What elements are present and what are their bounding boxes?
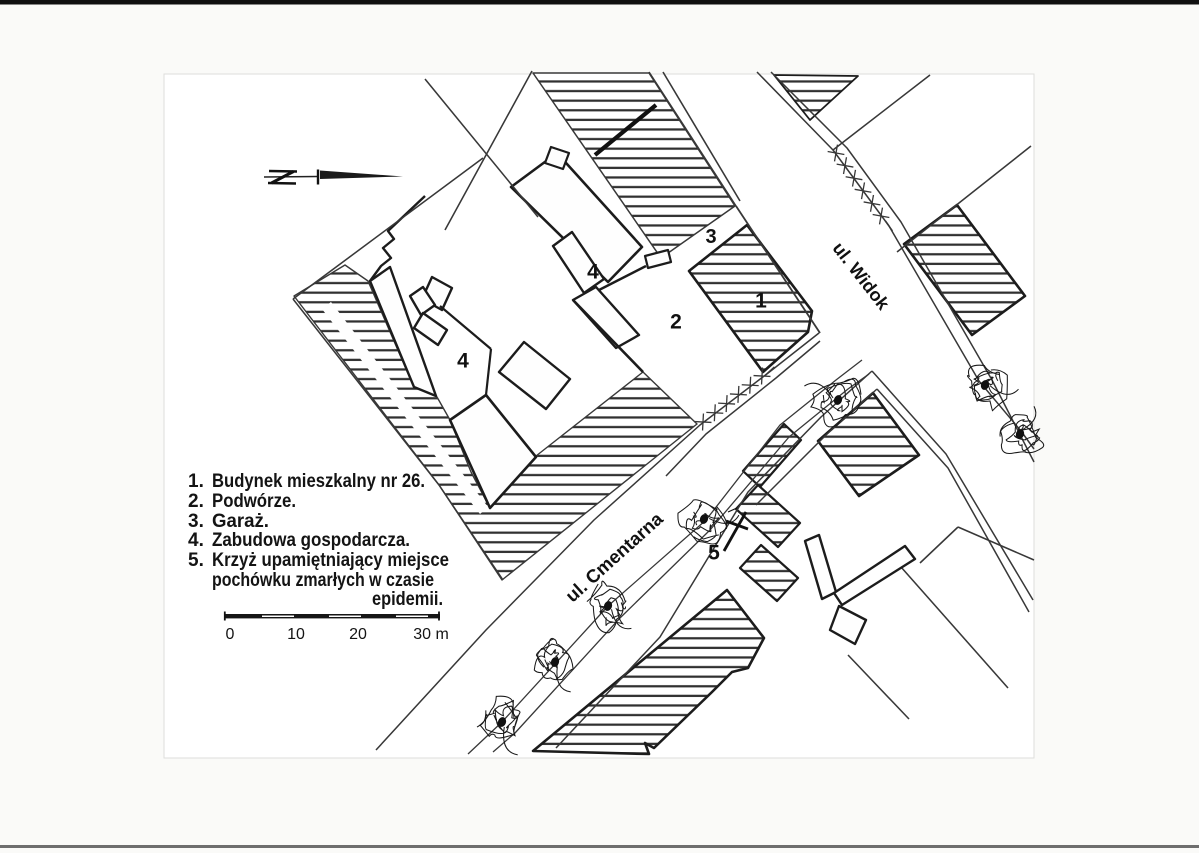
- svg-text:epidemii.: epidemii.: [372, 589, 443, 610]
- svg-text:3.: 3.: [188, 511, 204, 532]
- svg-text:1: 1: [755, 290, 767, 313]
- svg-text:Krzyż upamiętniający miejsce: Krzyż upamiętniający miejsce: [212, 550, 449, 571]
- svg-text:Budynek mieszkalny nr 26.: Budynek mieszkalny nr 26.: [212, 471, 425, 492]
- svg-text:1.: 1.: [188, 471, 204, 492]
- svg-text:3: 3: [705, 226, 716, 248]
- svg-text:10: 10: [287, 626, 305, 643]
- svg-text:pochówku zmarłych w czasie: pochówku zmarłych w czasie: [212, 570, 434, 591]
- svg-text:2.: 2.: [188, 491, 204, 512]
- svg-text:30 m: 30 m: [413, 626, 449, 643]
- svg-text:4.: 4.: [188, 530, 204, 551]
- svg-text:2: 2: [670, 311, 682, 334]
- svg-text:0: 0: [226, 626, 235, 643]
- svg-text:4: 4: [457, 350, 469, 373]
- svg-text:Garaż.: Garaż.: [212, 511, 269, 532]
- svg-text:20: 20: [349, 626, 367, 643]
- svg-text:4: 4: [587, 261, 599, 284]
- svg-text:5: 5: [708, 542, 720, 565]
- svg-text:Zabudowa gospodarcza.: Zabudowa gospodarcza.: [212, 530, 410, 551]
- svg-text:5.: 5.: [188, 550, 204, 571]
- svg-text:Podwórze.: Podwórze.: [212, 491, 296, 512]
